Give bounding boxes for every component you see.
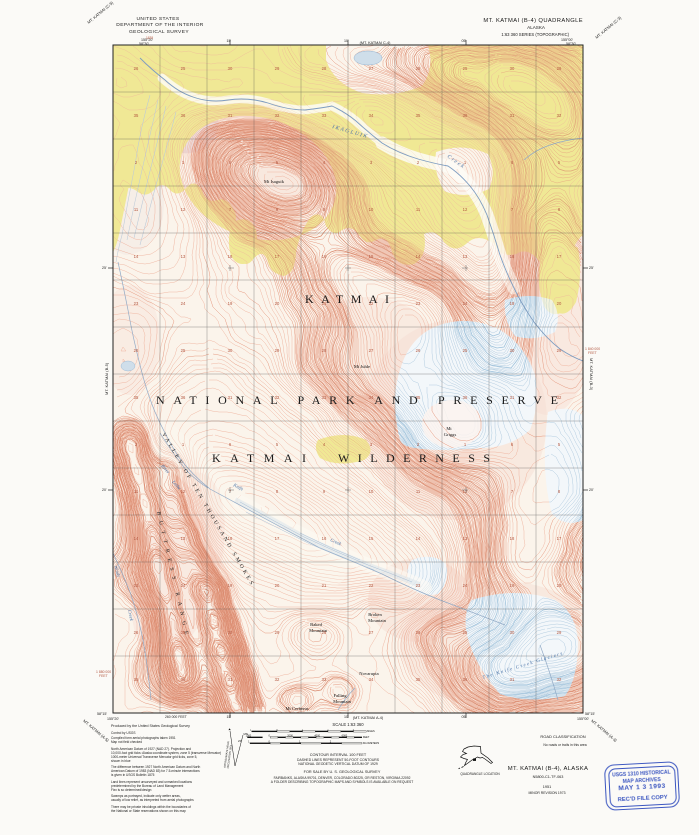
svg-text:33: 33	[322, 395, 327, 400]
svg-text:23: 23	[416, 301, 421, 306]
svg-text:26: 26	[134, 630, 139, 635]
svg-text:21: 21	[322, 583, 327, 588]
svg-text:19: 19	[228, 301, 233, 306]
svg-text:23°: 23°	[238, 739, 242, 743]
svg-text:31: 31	[228, 395, 233, 400]
svg-text:25: 25	[463, 348, 468, 353]
svg-text:11: 11	[134, 207, 139, 212]
svg-text:24: 24	[181, 301, 186, 306]
svg-text:26: 26	[416, 66, 421, 71]
svg-text:2000: 2000	[287, 734, 293, 737]
svg-text:Mt: Mt	[446, 426, 452, 431]
svg-text:MN: MN	[244, 732, 248, 736]
svg-text:24: 24	[463, 583, 468, 588]
svg-text:20: 20	[557, 583, 562, 588]
svg-text:KILOMETERS: KILOMETERS	[363, 742, 379, 745]
svg-text:23: 23	[134, 583, 139, 588]
svg-text:23: 23	[134, 301, 139, 306]
svg-text:Broken: Broken	[368, 612, 382, 617]
svg-text:Mt Isaguik: Mt Isaguik	[264, 179, 285, 184]
svg-text:12: 12	[463, 207, 468, 212]
svg-text:19: 19	[510, 583, 515, 588]
svg-text:30: 30	[228, 66, 233, 71]
svg-text:30: 30	[510, 630, 515, 635]
svg-text:17: 17	[557, 536, 562, 541]
svg-text:36: 36	[181, 395, 186, 400]
svg-text:27: 27	[369, 348, 374, 353]
svg-text:12: 12	[181, 207, 186, 212]
svg-text:29: 29	[275, 348, 280, 353]
svg-text:29: 29	[557, 348, 562, 353]
svg-text:3: 3	[353, 729, 355, 732]
svg-text:13: 13	[463, 536, 468, 541]
svg-text:26: 26	[416, 348, 421, 353]
svg-text:27: 27	[369, 66, 374, 71]
svg-text:24: 24	[463, 301, 468, 306]
svg-text:Mountain: Mountain	[333, 699, 352, 704]
svg-text:22: 22	[369, 583, 374, 588]
svg-text:33: 33	[322, 677, 327, 682]
svg-text:20: 20	[557, 301, 562, 306]
svg-text:FEET: FEET	[363, 736, 370, 739]
svg-text:20: 20	[275, 583, 280, 588]
svg-text:30: 30	[510, 66, 515, 71]
svg-text:29: 29	[275, 66, 280, 71]
svg-text:10: 10	[369, 489, 374, 494]
svg-text:Mt Cerberus: Mt Cerberus	[285, 706, 308, 711]
svg-text:Griggs: Griggs	[444, 432, 457, 437]
svg-text:★: ★	[228, 727, 231, 731]
svg-text:35: 35	[134, 677, 139, 682]
svg-text:14: 14	[134, 254, 139, 259]
svg-text:28: 28	[322, 348, 327, 353]
svg-text:32: 32	[275, 677, 280, 682]
svg-text:Baked: Baked	[310, 622, 322, 627]
svg-text:10: 10	[369, 207, 374, 212]
svg-text:31: 31	[228, 113, 233, 118]
svg-text:31: 31	[510, 113, 515, 118]
svg-text:Falling: Falling	[333, 693, 347, 698]
svg-text:Mountain: Mountain	[309, 628, 328, 633]
svg-text:28: 28	[322, 66, 327, 71]
svg-text:15: 15	[369, 254, 374, 259]
svg-text:32: 32	[557, 113, 562, 118]
svg-text:31: 31	[510, 677, 515, 682]
svg-text:34: 34	[369, 113, 374, 118]
svg-text:4000: 4000	[314, 734, 320, 737]
svg-text:14: 14	[416, 536, 421, 541]
svg-text:18: 18	[228, 254, 233, 259]
svg-text:36: 36	[181, 113, 186, 118]
svg-text:36: 36	[463, 677, 468, 682]
svg-text:25: 25	[463, 630, 468, 635]
svg-text:17: 17	[275, 254, 280, 259]
svg-text:2: 2	[327, 729, 329, 732]
svg-text:16: 16	[322, 536, 327, 541]
svg-text:Mountain: Mountain	[368, 618, 387, 623]
svg-text:20: 20	[275, 301, 280, 306]
svg-text:13: 13	[181, 536, 186, 541]
svg-text:29: 29	[557, 630, 562, 635]
svg-text:31: 31	[228, 677, 233, 682]
svg-text:32: 32	[275, 113, 280, 118]
svg-text:29: 29	[557, 66, 562, 71]
svg-text:1: 1	[302, 729, 304, 732]
svg-text:0: 0	[276, 729, 278, 732]
svg-text:MILES: MILES	[367, 730, 375, 733]
svg-text:11: 11	[416, 489, 421, 494]
svg-text:34: 34	[369, 677, 374, 682]
svg-text:16: 16	[322, 254, 327, 259]
svg-text:24: 24	[181, 583, 186, 588]
svg-text:12: 12	[181, 489, 186, 494]
svg-text:18: 18	[510, 536, 515, 541]
svg-text:17: 17	[275, 536, 280, 541]
svg-text:31: 31	[510, 395, 515, 400]
svg-text:25: 25	[181, 66, 186, 71]
svg-text:17: 17	[557, 254, 562, 259]
svg-text:30: 30	[510, 348, 515, 353]
svg-text:30: 30	[228, 630, 233, 635]
svg-text:26: 26	[134, 66, 139, 71]
svg-text:15: 15	[369, 536, 374, 541]
svg-text:36: 36	[463, 113, 468, 118]
svg-text:30: 30	[228, 348, 233, 353]
svg-text:33: 33	[322, 113, 327, 118]
svg-text:Mt Juhle: Mt Juhle	[354, 364, 370, 369]
svg-text:35: 35	[134, 113, 139, 118]
svg-text:36: 36	[463, 395, 468, 400]
svg-text:19: 19	[228, 583, 233, 588]
svg-text:23: 23	[416, 583, 421, 588]
svg-text:35: 35	[416, 113, 421, 118]
svg-text:Novarupta: Novarupta	[359, 671, 378, 676]
svg-text:25: 25	[181, 348, 186, 353]
svg-text:14: 14	[134, 536, 139, 541]
svg-text:18: 18	[510, 254, 515, 259]
svg-text:34: 34	[369, 395, 374, 400]
svg-text:26: 26	[416, 630, 421, 635]
svg-text:36: 36	[181, 677, 186, 682]
svg-text:35: 35	[134, 395, 139, 400]
svg-text:14: 14	[416, 254, 421, 259]
svg-text:25: 25	[463, 66, 468, 71]
svg-text:32: 32	[557, 677, 562, 682]
svg-text:27: 27	[369, 630, 374, 635]
svg-text:11: 11	[416, 207, 421, 212]
svg-text:6000: 6000	[342, 734, 348, 737]
svg-text:19: 19	[510, 301, 515, 306]
svg-text:35: 35	[416, 677, 421, 682]
svg-text:11: 11	[134, 489, 139, 494]
svg-text:13: 13	[463, 254, 468, 259]
svg-text:13: 13	[181, 254, 186, 259]
svg-text:26: 26	[134, 348, 139, 353]
svg-text:29: 29	[275, 630, 280, 635]
